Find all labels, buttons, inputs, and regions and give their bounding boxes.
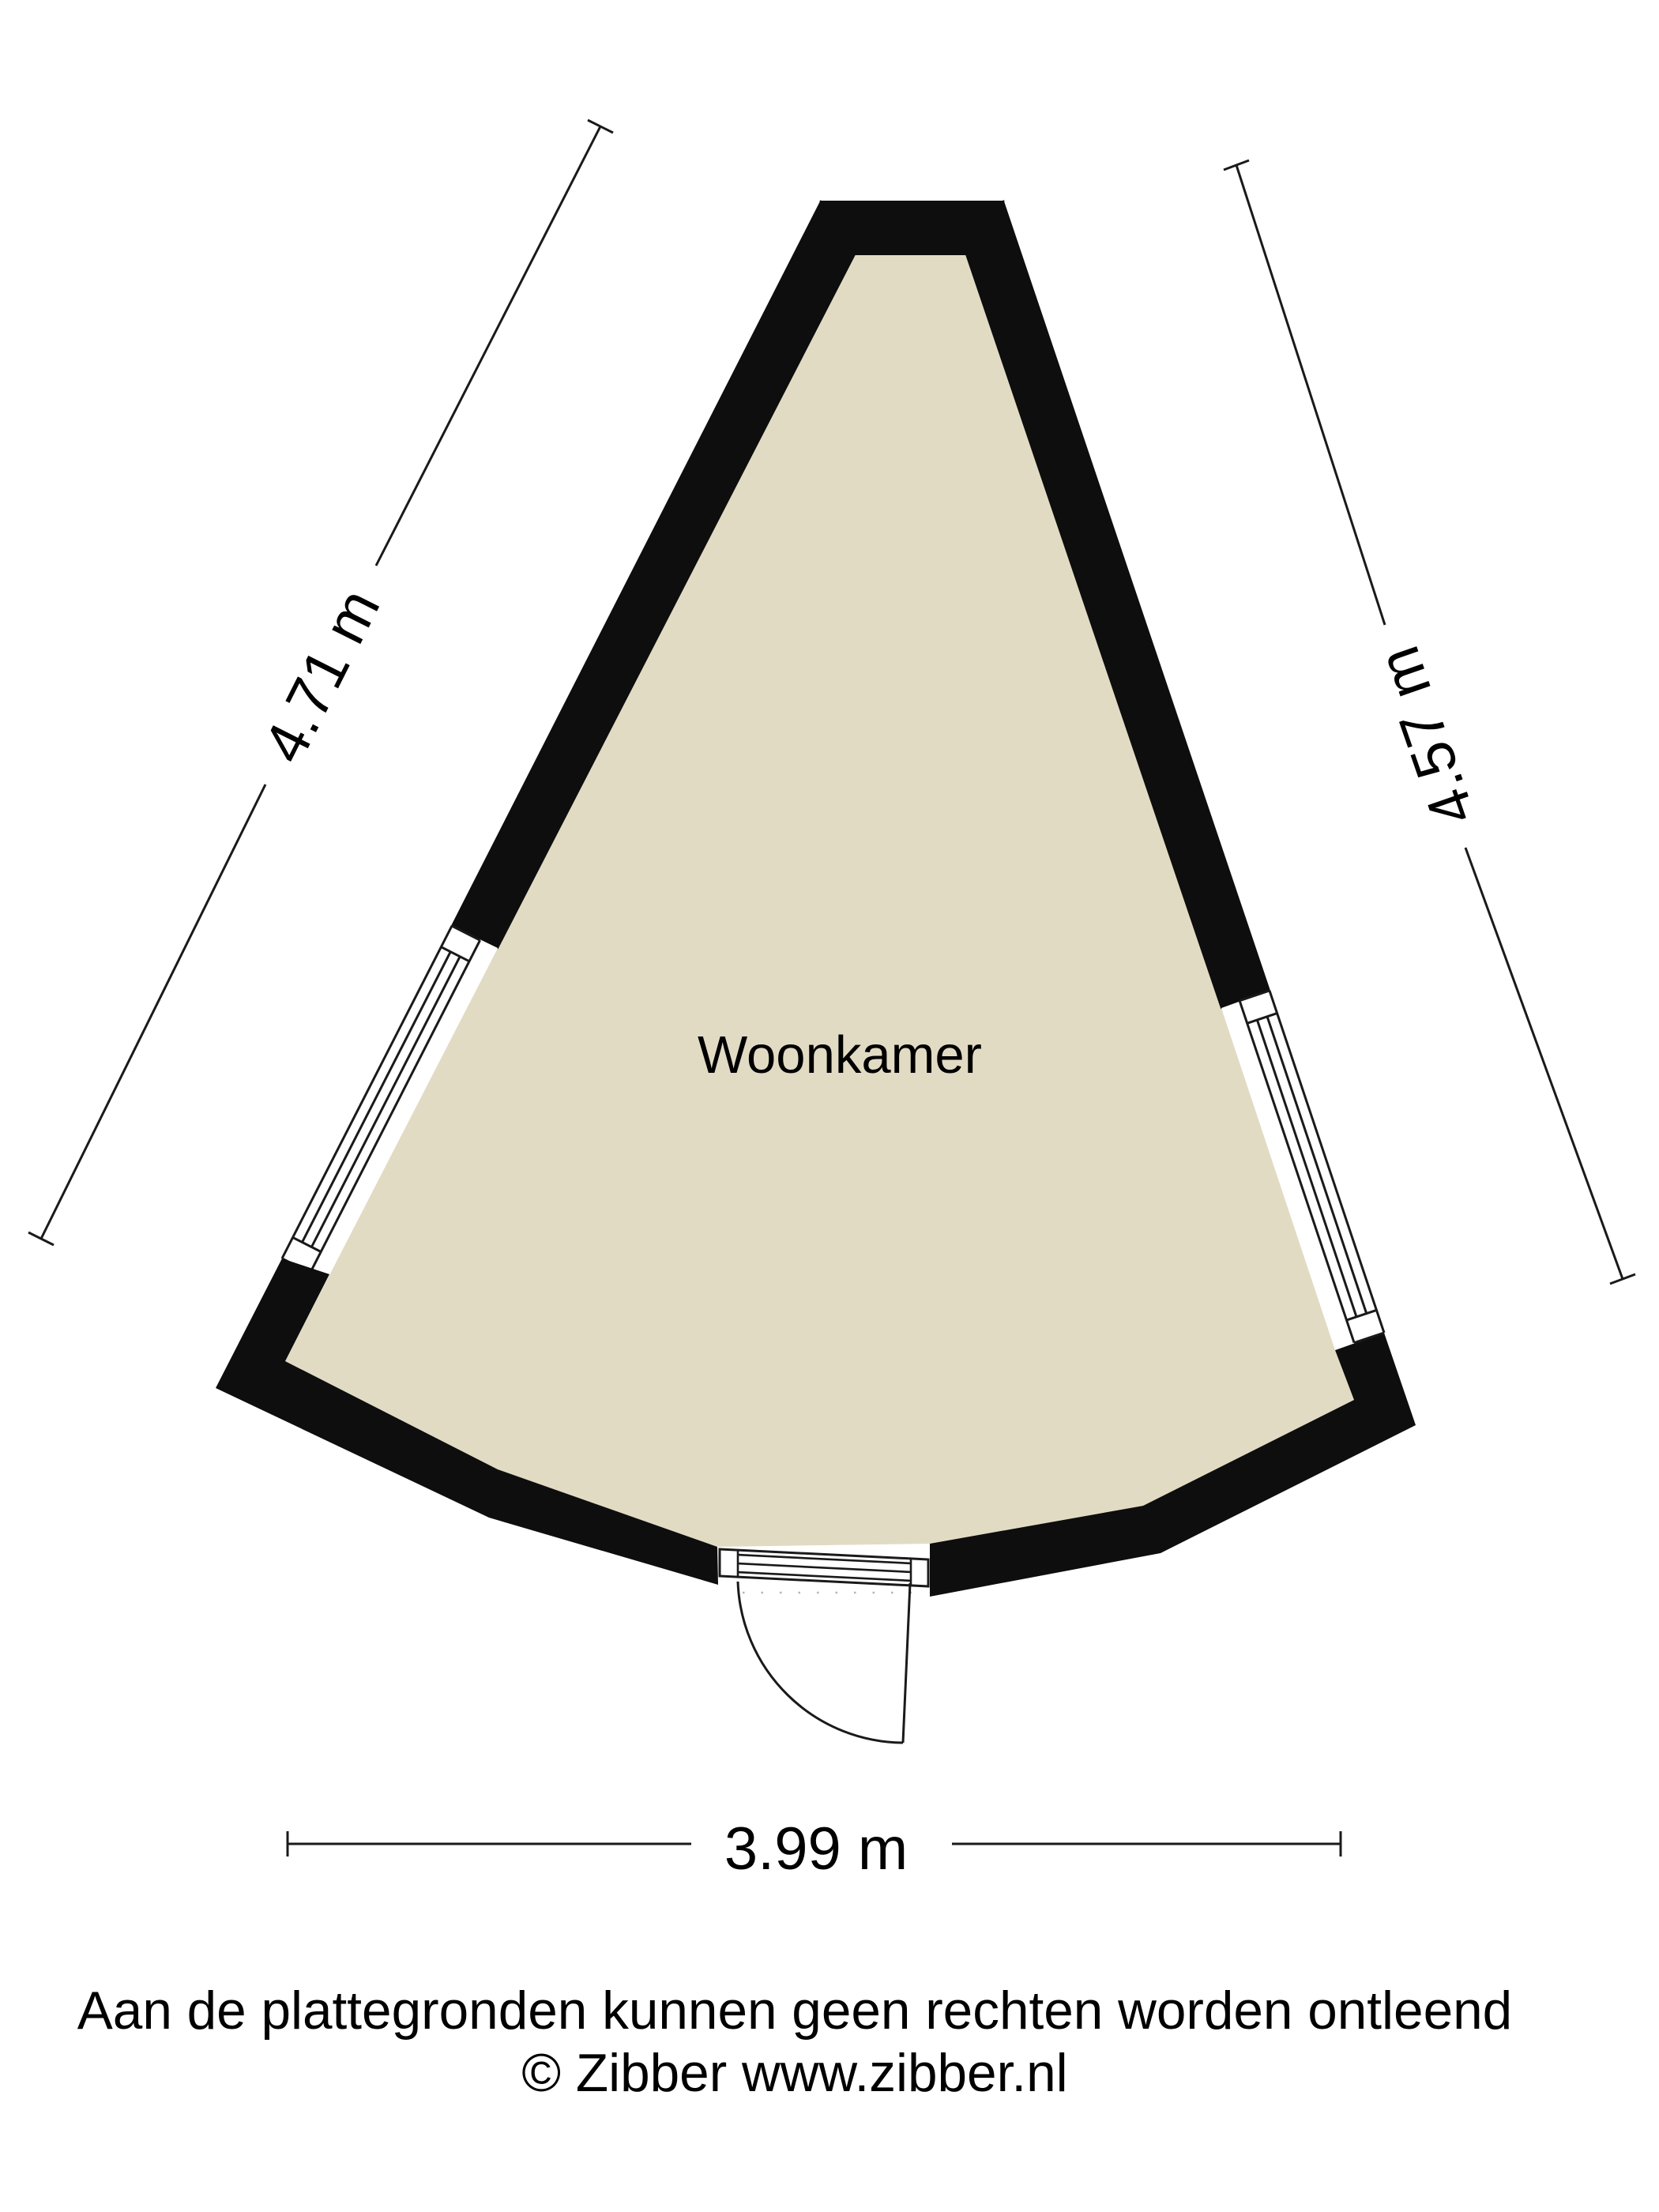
svg-text:© Zibber www.zibber.nl: © Zibber www.zibber.nl	[521, 2044, 1067, 2103]
svg-text:Woonkamer: Woonkamer	[698, 1025, 982, 1085]
svg-text:4.71 m: 4.71 m	[250, 579, 393, 773]
svg-text:3.99 m: 3.99 m	[724, 1815, 908, 1883]
svg-text:4.57 m: 4.57 m	[1364, 638, 1488, 833]
svg-text:Aan de plattegronden kunnen ge: Aan de plattegronden kunnen geen rechten…	[77, 1981, 1512, 2041]
